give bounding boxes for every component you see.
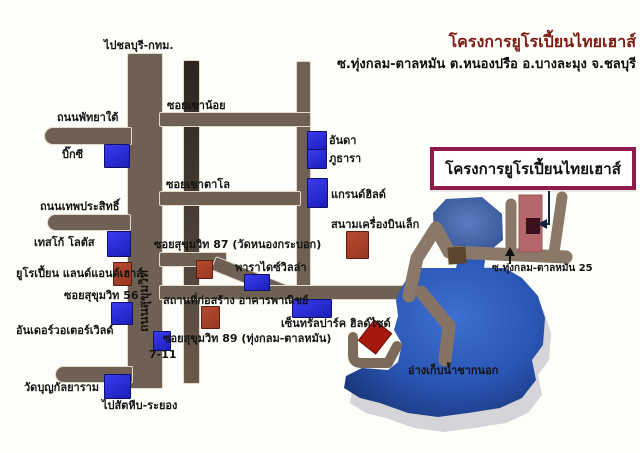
label-construction-site: สถานที่ก่อสร้าง อาคารพาณิชย์	[163, 294, 308, 307]
label-pattaya-tai: ถนนพัทยาใต้	[57, 111, 118, 124]
construction-marker	[201, 306, 220, 329]
label-seven-eleven: 7-11	[149, 348, 177, 361]
anda-marker	[307, 131, 327, 150]
label-reservoir: อ่างเก็บน้ำชากนอก	[408, 364, 498, 377]
tesco-marker	[107, 231, 131, 257]
airfield-marker	[346, 231, 369, 259]
sign-arrow-line	[546, 191, 549, 224]
phu-thara-marker	[307, 149, 327, 169]
project-sign-box: โครงการยูโรเปี้ยนไทยเฮาส์	[430, 147, 636, 190]
label-soi-khao-noi: ซอยเขาน้อย	[167, 99, 226, 112]
label-soi-khao-talo: ซอยเขาตาโล	[166, 178, 230, 191]
label-to-sattahip: ไปสัตหีบ-ระยอง	[102, 399, 177, 412]
grand-hill-marker	[307, 178, 328, 208]
map-subtitle: ซ.ทุ่งกลม-ตาลหมัน ต.หนองปรือ อ.บางละมุง …	[250, 53, 636, 74]
label-soi-56: ซอยสุขุมวิท 56	[64, 289, 139, 302]
label-wat-boon: วัดบุญกัลยาราม	[24, 381, 99, 394]
project-site-unit	[526, 218, 540, 234]
soi87-red-marker	[196, 260, 213, 279]
label-grand-hill: แกรนด์ฮิลด์	[331, 188, 386, 201]
big-c-marker	[104, 144, 130, 168]
location-map: โครงการยูโรเปี้ยนไทยเฮาส์ ซ.ทุ่งกลม-ตาลห…	[0, 0, 640, 453]
road-stub-right	[554, 197, 562, 253]
label-airfield: สนามเครื่องบินเล็ก	[331, 218, 419, 231]
label-soi-89: ซอยสุขุมวิท 89 (ทุ่งกลม-ตาลหมัน)	[163, 332, 331, 345]
soi56-marker	[111, 302, 133, 325]
wat-boon-marker	[104, 374, 131, 399]
label-phu-thara: ภูธารา	[329, 152, 361, 165]
label-to-chonburi: ไปชลบุรี-กทม.	[104, 39, 174, 52]
map-title: โครงการยูโรเปี้ยนไทยเฮาส์	[330, 30, 636, 55]
label-soi-25: ซ.ทุ่งกลม-ตาลหมัน 25	[492, 262, 593, 275]
project-sign-label: โครงการยูโรเปี้ยนไทยเฮาส์	[445, 157, 621, 181]
label-underwater-world: อันเดอร์วอเตอร์เวิลด์	[16, 324, 114, 337]
label-anda: อันดา	[329, 134, 356, 147]
paradise-villa-marker	[244, 274, 270, 291]
label-european-land-house: ยูโรเปี้ยน แลนด์แอนด์เฮาส์	[16, 267, 143, 280]
bridge-block	[447, 246, 466, 264]
label-soi-87: ซอยสุขุมวิท 87 (วัดหนองกระบอก)	[154, 238, 321, 251]
label-sukhumvit-road: ถนนสุขุมวิท	[134, 222, 153, 332]
label-central-park: เซ็นทรัลปาร์ค ฮิลด์ไซด์	[281, 317, 391, 330]
label-big-c: บิ๊กซี	[62, 148, 83, 161]
label-thep-prasit: ถนนเทพประสิทธิ์	[40, 200, 119, 213]
label-tesco: เทสโก้ โลตัส	[34, 236, 95, 249]
label-paradise-villa: พาราไดซ์วิลล่า	[235, 261, 307, 274]
